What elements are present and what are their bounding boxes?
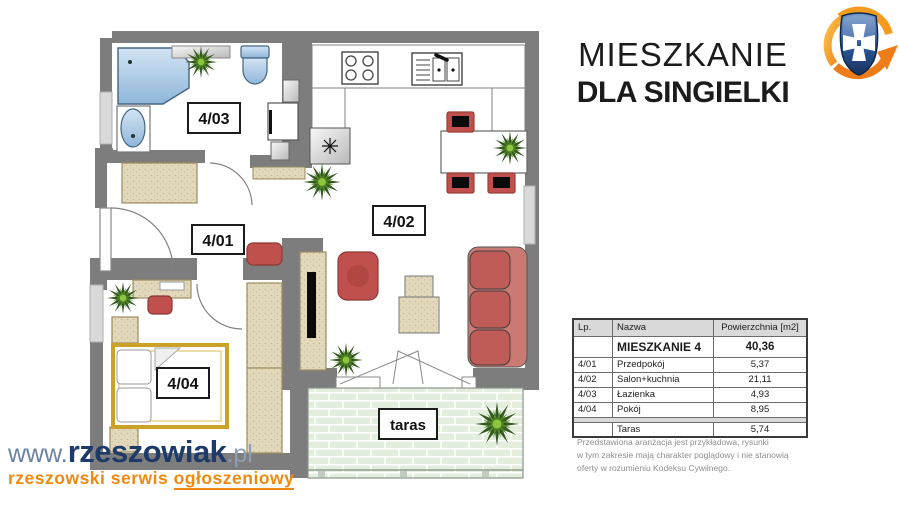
doormat xyxy=(253,167,305,179)
living-window xyxy=(524,186,535,244)
area-table: Lp. Nazwa Powierzchnia [m2] MIESZKANIE 4… xyxy=(572,318,808,438)
bathroom-door-swing xyxy=(210,163,252,205)
summary-lp xyxy=(573,337,613,358)
table-row: 4/01 Przedpokój 5,37 xyxy=(573,358,807,373)
svg-text:4/01: 4/01 xyxy=(202,233,233,250)
room-label-bathroom: 4/03 xyxy=(188,103,240,133)
row-name: Salon+kuchnia xyxy=(613,372,714,387)
living-pouf xyxy=(338,252,378,300)
entrance-door-leaf xyxy=(100,208,111,271)
tv-unit xyxy=(300,252,326,370)
watermark-tagline: rzeszowski serwis ogłoszeniowy xyxy=(8,468,294,489)
tagline-underlined: ogłoszeniowy xyxy=(174,468,295,490)
row-area: 4,93 xyxy=(714,387,808,402)
beige-armchair xyxy=(399,276,439,333)
title-line2: DLA SINGIELKI xyxy=(558,75,808,111)
row-name: Pokój xyxy=(613,402,714,417)
col-header-name: Nazwa xyxy=(613,319,714,337)
fridge xyxy=(310,128,350,164)
page-title: MIESZKANIE DLA SINGIELKI xyxy=(558,34,808,111)
row-name: Łazienka xyxy=(613,387,714,402)
washbasin xyxy=(117,106,150,152)
watermark-www: www. xyxy=(8,442,68,467)
svg-text:4/02: 4/02 xyxy=(383,214,414,231)
watermark-tld: .pl xyxy=(226,442,252,467)
table-row: 4/02 Salon+kuchnia 21,11 xyxy=(573,372,807,387)
room-label-bedroom: 4/04 xyxy=(157,368,209,398)
row-name: Przedpokój xyxy=(613,358,714,373)
row-area: 5,37 xyxy=(714,358,808,373)
plant-icon xyxy=(303,163,340,200)
bedroom-wardrobe xyxy=(247,283,282,453)
row-area: 8,95 xyxy=(714,402,808,417)
rzeszow-coat-of-arms-icon xyxy=(820,4,898,82)
bedroom-door-swing xyxy=(197,284,242,329)
watermark: www.rzeszowiak.pl rzeszowski serwis ogło… xyxy=(8,436,294,489)
summary-area: 40,36 xyxy=(714,337,808,358)
sofa xyxy=(468,247,527,367)
row-lp: 4/01 xyxy=(573,358,613,373)
toilet xyxy=(241,46,269,84)
room-label-terrace: taras xyxy=(379,409,437,439)
watermark-brand: rzeszowiak xyxy=(68,436,227,467)
stove xyxy=(342,52,378,84)
title-line1: MIESZKANIE xyxy=(558,34,808,75)
col-header-lp: Lp. xyxy=(573,319,613,337)
table-row: 4/03 Łazienka 4,93 xyxy=(573,387,807,402)
row-lp: 4/04 xyxy=(573,402,613,417)
table-header-row: Lp. Nazwa Powierzchnia [m2] xyxy=(573,319,807,337)
table-row: 4/04 Pokój 8,95 xyxy=(573,402,807,417)
row-lp: 4/02 xyxy=(573,372,613,387)
hall-pouf xyxy=(247,243,282,265)
hall-wardrobe xyxy=(122,163,197,203)
tagline-prefix: rzeszowski serwis xyxy=(8,468,174,488)
flyer-page: 4/03 4/01 4/02 4/04 taras MIESZKANIE DLA… xyxy=(0,0,900,506)
row-area: 21,11 xyxy=(714,372,808,387)
desk xyxy=(133,280,191,298)
floor-plan: 4/03 4/01 4/02 4/04 taras xyxy=(0,0,560,506)
summary-name: MIESZKANIE 4 xyxy=(613,337,714,358)
bedroom-window xyxy=(90,285,103,342)
balcony-door xyxy=(336,351,476,388)
room-label-hallway: 4/01 xyxy=(192,225,244,254)
kitchen-sink xyxy=(412,53,462,85)
row-lp: 4/03 xyxy=(573,387,613,402)
disclaimer-text: Przedstawiona aranżacja jest przykładowa… xyxy=(577,436,792,474)
bathroom-window xyxy=(100,92,112,144)
table-summary-row: MIESZKANIE 4 40,36 xyxy=(573,337,807,358)
col-header-area: Powierzchnia [m2] xyxy=(714,319,808,337)
svg-text:taras: taras xyxy=(390,417,426,434)
room-label-living: 4/02 xyxy=(373,206,425,235)
svg-text:4/03: 4/03 xyxy=(198,111,229,128)
desk-chair xyxy=(148,296,172,314)
watermark-url: www.rzeszowiak.pl xyxy=(8,436,294,467)
svg-text:4/04: 4/04 xyxy=(167,376,198,393)
